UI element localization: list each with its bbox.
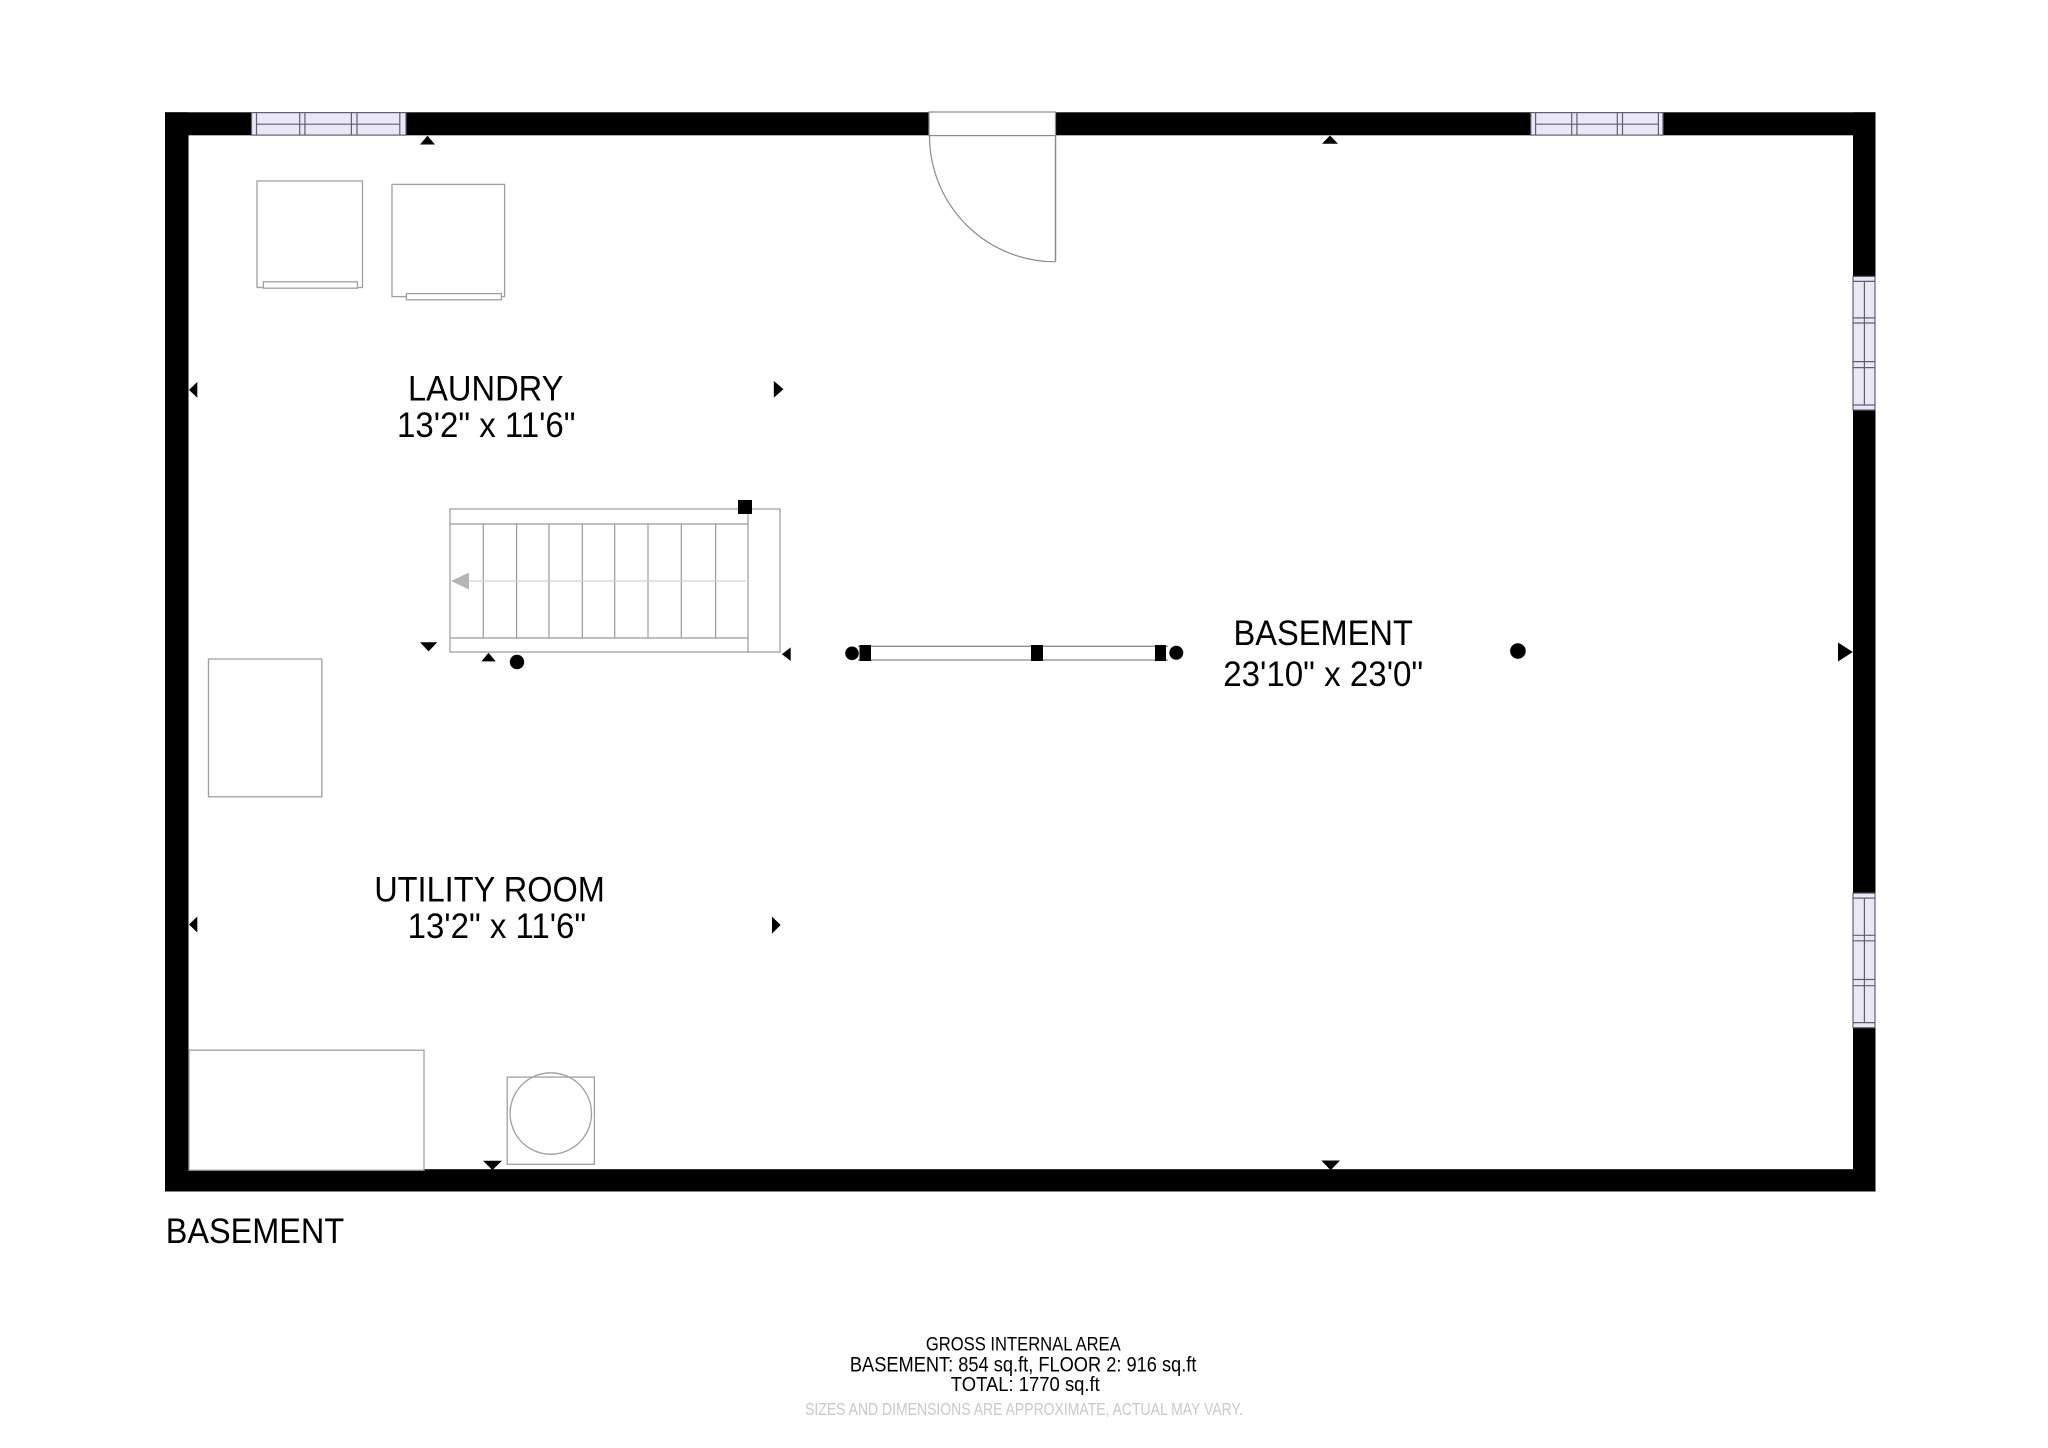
svg-text:BASEMENT: BASEMENT <box>1234 614 1413 653</box>
svg-text:13'2" x 11'6": 13'2" x 11'6" <box>408 907 586 946</box>
svg-text:SIZES AND DIMENSIONS ARE APPRO: SIZES AND DIMENSIONS ARE APPROXIMATE, AC… <box>805 1399 1243 1419</box>
svg-text:BASEMENT: BASEMENT <box>166 1211 345 1251</box>
svg-text:13'2" x 11'6": 13'2" x 11'6" <box>397 406 576 445</box>
svg-text:BASEMENT: 854 sq.ft, FLOOR 2:: BASEMENT: 854 sq.ft, FLOOR 2: 916 sq.ft <box>850 1352 1197 1376</box>
svg-text:TOTAL: 1770 sq.ft: TOTAL: 1770 sq.ft <box>951 1374 1100 1396</box>
svg-text:LAUNDRY: LAUNDRY <box>408 370 563 409</box>
svg-text:UTILITY ROOM: UTILITY ROOM <box>374 871 605 910</box>
svg-text:23'10" x 23'0": 23'10" x 23'0" <box>1223 655 1423 694</box>
